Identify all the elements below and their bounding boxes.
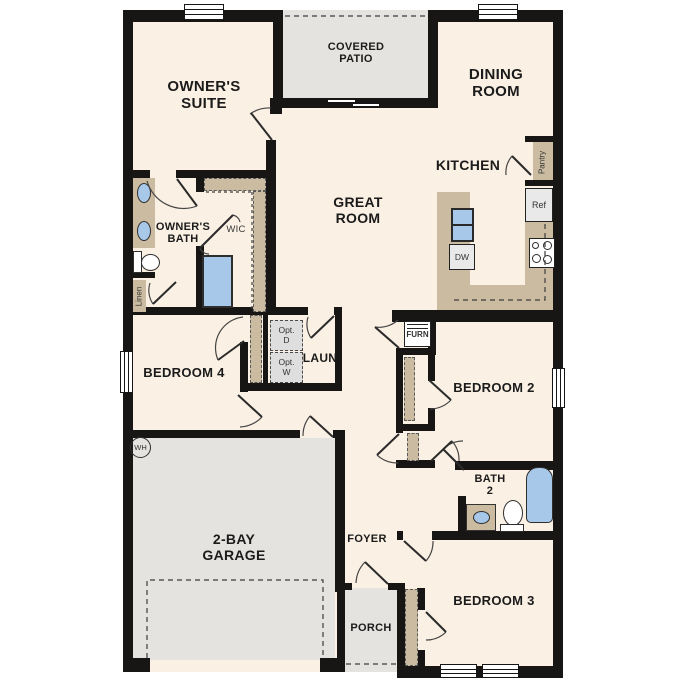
window	[552, 368, 565, 408]
burner	[532, 254, 541, 263]
label-line: GARAGE	[202, 548, 265, 564]
wic-shelf-top	[204, 178, 266, 191]
window-mullion	[128, 352, 129, 392]
toilet-bowl	[503, 500, 523, 526]
wall	[240, 383, 342, 391]
owners-bath-label: OWNER'S BATH	[156, 221, 210, 246]
wall	[417, 650, 425, 666]
burner	[543, 255, 552, 264]
floor-plan: DW Ref FURN WH Opt. D Opt. W	[0, 0, 687, 687]
label-line: 2-BAY	[202, 532, 265, 548]
label-line: GREAT	[333, 195, 382, 211]
wall	[196, 178, 204, 192]
label-line: PATIO	[328, 53, 385, 65]
porch-left-wall	[337, 588, 345, 672]
dishwasher-label: DW	[455, 252, 469, 262]
label-line: 2	[475, 485, 506, 497]
label-line: COVERED	[328, 41, 385, 53]
pantry-label: Pantry	[539, 151, 548, 174]
water-heater: WH	[130, 437, 151, 458]
porch-label: PORCH	[350, 622, 391, 634]
range-stove	[529, 238, 555, 268]
patio-left-wall	[273, 10, 283, 108]
laundry-label: LAUN	[303, 352, 338, 365]
kitchen-label: KITCHEN	[436, 158, 500, 174]
window-mullion	[483, 669, 518, 670]
owners-suite-label: OWNER'S SUITE	[167, 79, 240, 113]
wall	[176, 170, 268, 178]
window-mullion	[441, 669, 476, 670]
optional-washer: Opt. W	[270, 352, 303, 383]
dishwasher: DW	[449, 244, 475, 270]
wall	[428, 355, 435, 381]
toilet-bowl	[141, 254, 160, 271]
label-line: BATH	[156, 233, 210, 245]
window-mullion	[185, 14, 223, 15]
wall	[123, 170, 150, 178]
bath2-sink	[473, 511, 490, 524]
opt-dryer-line: D	[271, 336, 302, 346]
window-mullion	[441, 673, 476, 674]
water-heater-label: WH	[131, 443, 150, 452]
wall	[417, 588, 425, 610]
garage-label: 2-BAY GARAGE	[202, 532, 265, 563]
sink-basin	[453, 210, 472, 224]
wall	[266, 307, 308, 315]
wall	[432, 531, 563, 540]
bedroom2-closet-shelf	[404, 357, 415, 421]
window	[120, 351, 133, 393]
foyer-label: FOYER	[347, 533, 386, 545]
window	[482, 664, 519, 678]
kitchen-sink	[451, 208, 474, 242]
wall	[396, 348, 436, 355]
label-line: BATH	[475, 473, 506, 485]
wic-label: WIC	[226, 225, 245, 236]
bath-sink	[137, 183, 151, 203]
wall	[334, 307, 342, 315]
garage-right-wall	[335, 430, 345, 583]
bedroom4-closet-shelf	[250, 315, 262, 383]
wall	[553, 10, 563, 678]
sliding-door-panel	[352, 103, 380, 107]
bathtub	[526, 467, 553, 523]
furnace: FURN	[404, 321, 431, 347]
window	[440, 664, 477, 678]
great-room-label: GREAT ROOM	[333, 195, 382, 226]
wall	[320, 658, 337, 672]
shower	[202, 255, 233, 308]
label-line: ROOM	[469, 84, 523, 101]
wall	[123, 10, 133, 672]
wall	[458, 496, 466, 531]
wall	[396, 355, 403, 433]
linen-label: Linen	[136, 287, 145, 307]
sink-basin	[453, 226, 472, 240]
label-line: OWNER'S	[167, 79, 240, 96]
covered-patio-label: COVERED PATIO	[328, 41, 385, 66]
optional-dryer: Opt. D	[270, 320, 303, 351]
label-line: ROOM	[333, 211, 382, 227]
label-line: DINING	[469, 67, 523, 84]
burner	[532, 242, 539, 249]
wall	[396, 424, 435, 431]
dining-room-label: DINING ROOM	[469, 67, 523, 101]
window	[184, 4, 224, 20]
bedroom2-label: BEDROOM 2	[453, 381, 534, 396]
patio-right-wall	[428, 10, 438, 108]
bedroom3-label: BEDROOM 3	[453, 594, 534, 609]
window-mullion	[479, 9, 517, 10]
bedroom4-label: BEDROOM 4	[143, 366, 224, 381]
hall-closet-shelf	[407, 433, 419, 461]
wall	[428, 408, 435, 425]
furnace-vent	[407, 324, 428, 329]
window-mullion	[483, 673, 518, 674]
wall	[263, 315, 268, 383]
window-mullion	[185, 9, 223, 10]
wic-shelf-right	[253, 191, 266, 312]
burner	[543, 241, 552, 250]
refrigerator-label: Ref	[532, 200, 546, 210]
wall	[270, 98, 282, 114]
bedroom3-closet-shelf	[405, 589, 418, 666]
garage-top-wall	[123, 430, 300, 438]
window-mullion	[556, 369, 557, 407]
bath-sink	[137, 221, 151, 241]
window-mullion	[560, 369, 561, 407]
wall	[396, 460, 435, 468]
label-line: OWNER'S	[156, 221, 210, 233]
toilet-tank	[500, 524, 524, 532]
window	[478, 4, 518, 20]
wall	[525, 180, 553, 186]
opt-washer-line: W	[271, 368, 302, 378]
porch-right-wall	[397, 588, 405, 678]
wall	[266, 178, 276, 315]
wall	[388, 583, 405, 590]
wall	[123, 658, 150, 672]
furnace-label: FURN	[405, 330, 430, 339]
label-line: SUITE	[167, 96, 240, 113]
wall	[397, 531, 403, 540]
wall	[342, 583, 352, 590]
window-mullion	[124, 352, 125, 392]
window-mullion	[479, 14, 517, 15]
bath2-label: BATH 2	[475, 473, 506, 498]
refrigerator: Ref	[525, 188, 553, 222]
